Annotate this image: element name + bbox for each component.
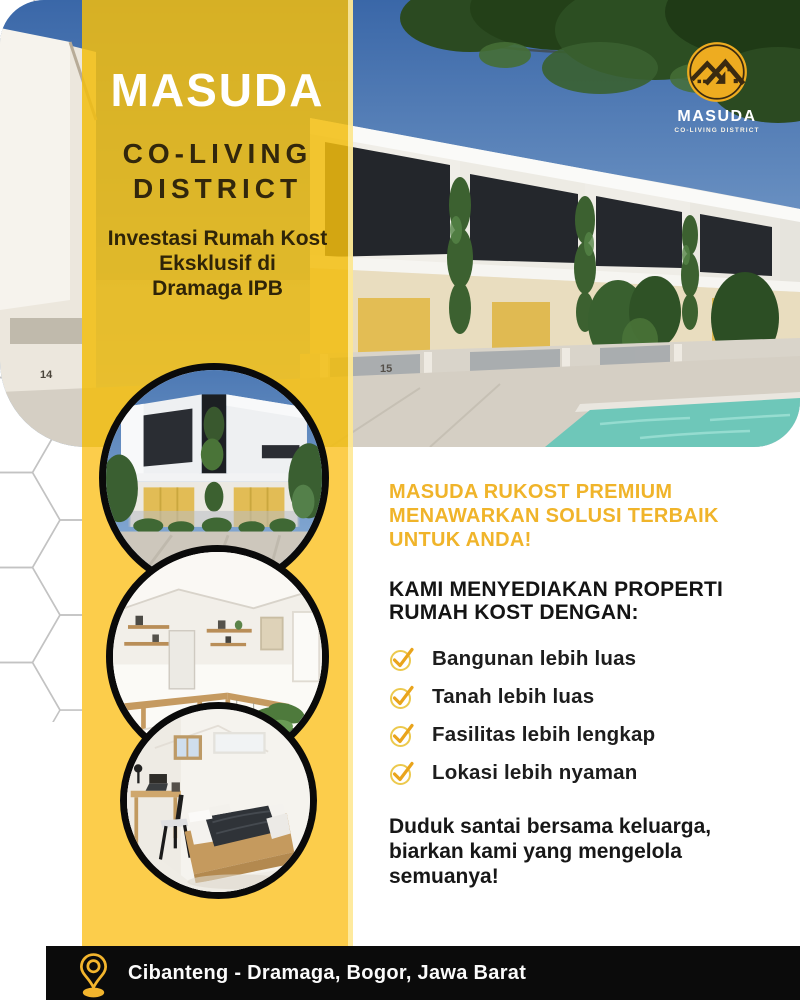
feature-item: Fasilitas lebih lengkap [389,716,789,754]
brand-subtitle: CO-LIVING DISTRICT [82,136,353,206]
location-pin-icon [76,951,111,998]
bedroom-illustration [127,709,310,892]
house-number-15: 15 [380,363,392,375]
feature-item: Tanah lebih luas [389,678,789,716]
subheadline: KAMI MENYEDIAKAN PROPERTI RUMAH KOST DEN… [389,578,779,624]
feature-list: Bangunan lebih luas Tanah lebih luas Fas… [389,640,789,792]
check-icon [389,646,415,672]
brand-subtitle-line1: CO-LIVING [82,136,353,171]
headline: MASUDA RUKOST PREMIUM MENAWARKAN SOLUSI … [389,480,779,552]
feature-item: Lokasi lebih nyaman [389,754,789,792]
feature-label: Lokasi lebih nyaman [432,761,637,785]
location-text: Cibanteng - Dramaga, Bogor, Jawa Barat [128,962,526,985]
house-number-14: 14 [40,369,53,381]
check-icon [389,684,415,710]
check-icon [389,722,415,748]
flyer-page: 14 15 MASUDA CO-LIVING DISTRICT Investas… [0,0,800,1000]
closing-text: Duduk santai bersama keluarga, biarkan k… [389,814,789,889]
brand-title: MASUDA [82,66,353,114]
photo-circle-bedroom [120,702,317,899]
brand-subtitle-line2: DISTRICT [82,171,353,206]
masuda-logo: MASUDA CO-LIVING DISTRICT [660,40,774,134]
logo-tagline: CO-LIVING DISTRICT [660,127,774,134]
logo-house-icon [685,40,749,104]
feature-label: Tanah lebih luas [432,685,594,709]
footer-bar: Cibanteng - Dramaga, Bogor, Jawa Barat [46,946,800,1000]
feature-item: Bangunan lebih luas [389,640,789,678]
brand-tagline: Investasi Rumah Kost Eksklusif di Dramag… [82,226,353,301]
feature-label: Bangunan lebih luas [432,647,636,671]
logo-wordmark: MASUDA [660,108,774,126]
check-icon [389,760,415,786]
feature-label: Fasilitas lebih lengkap [432,723,655,747]
